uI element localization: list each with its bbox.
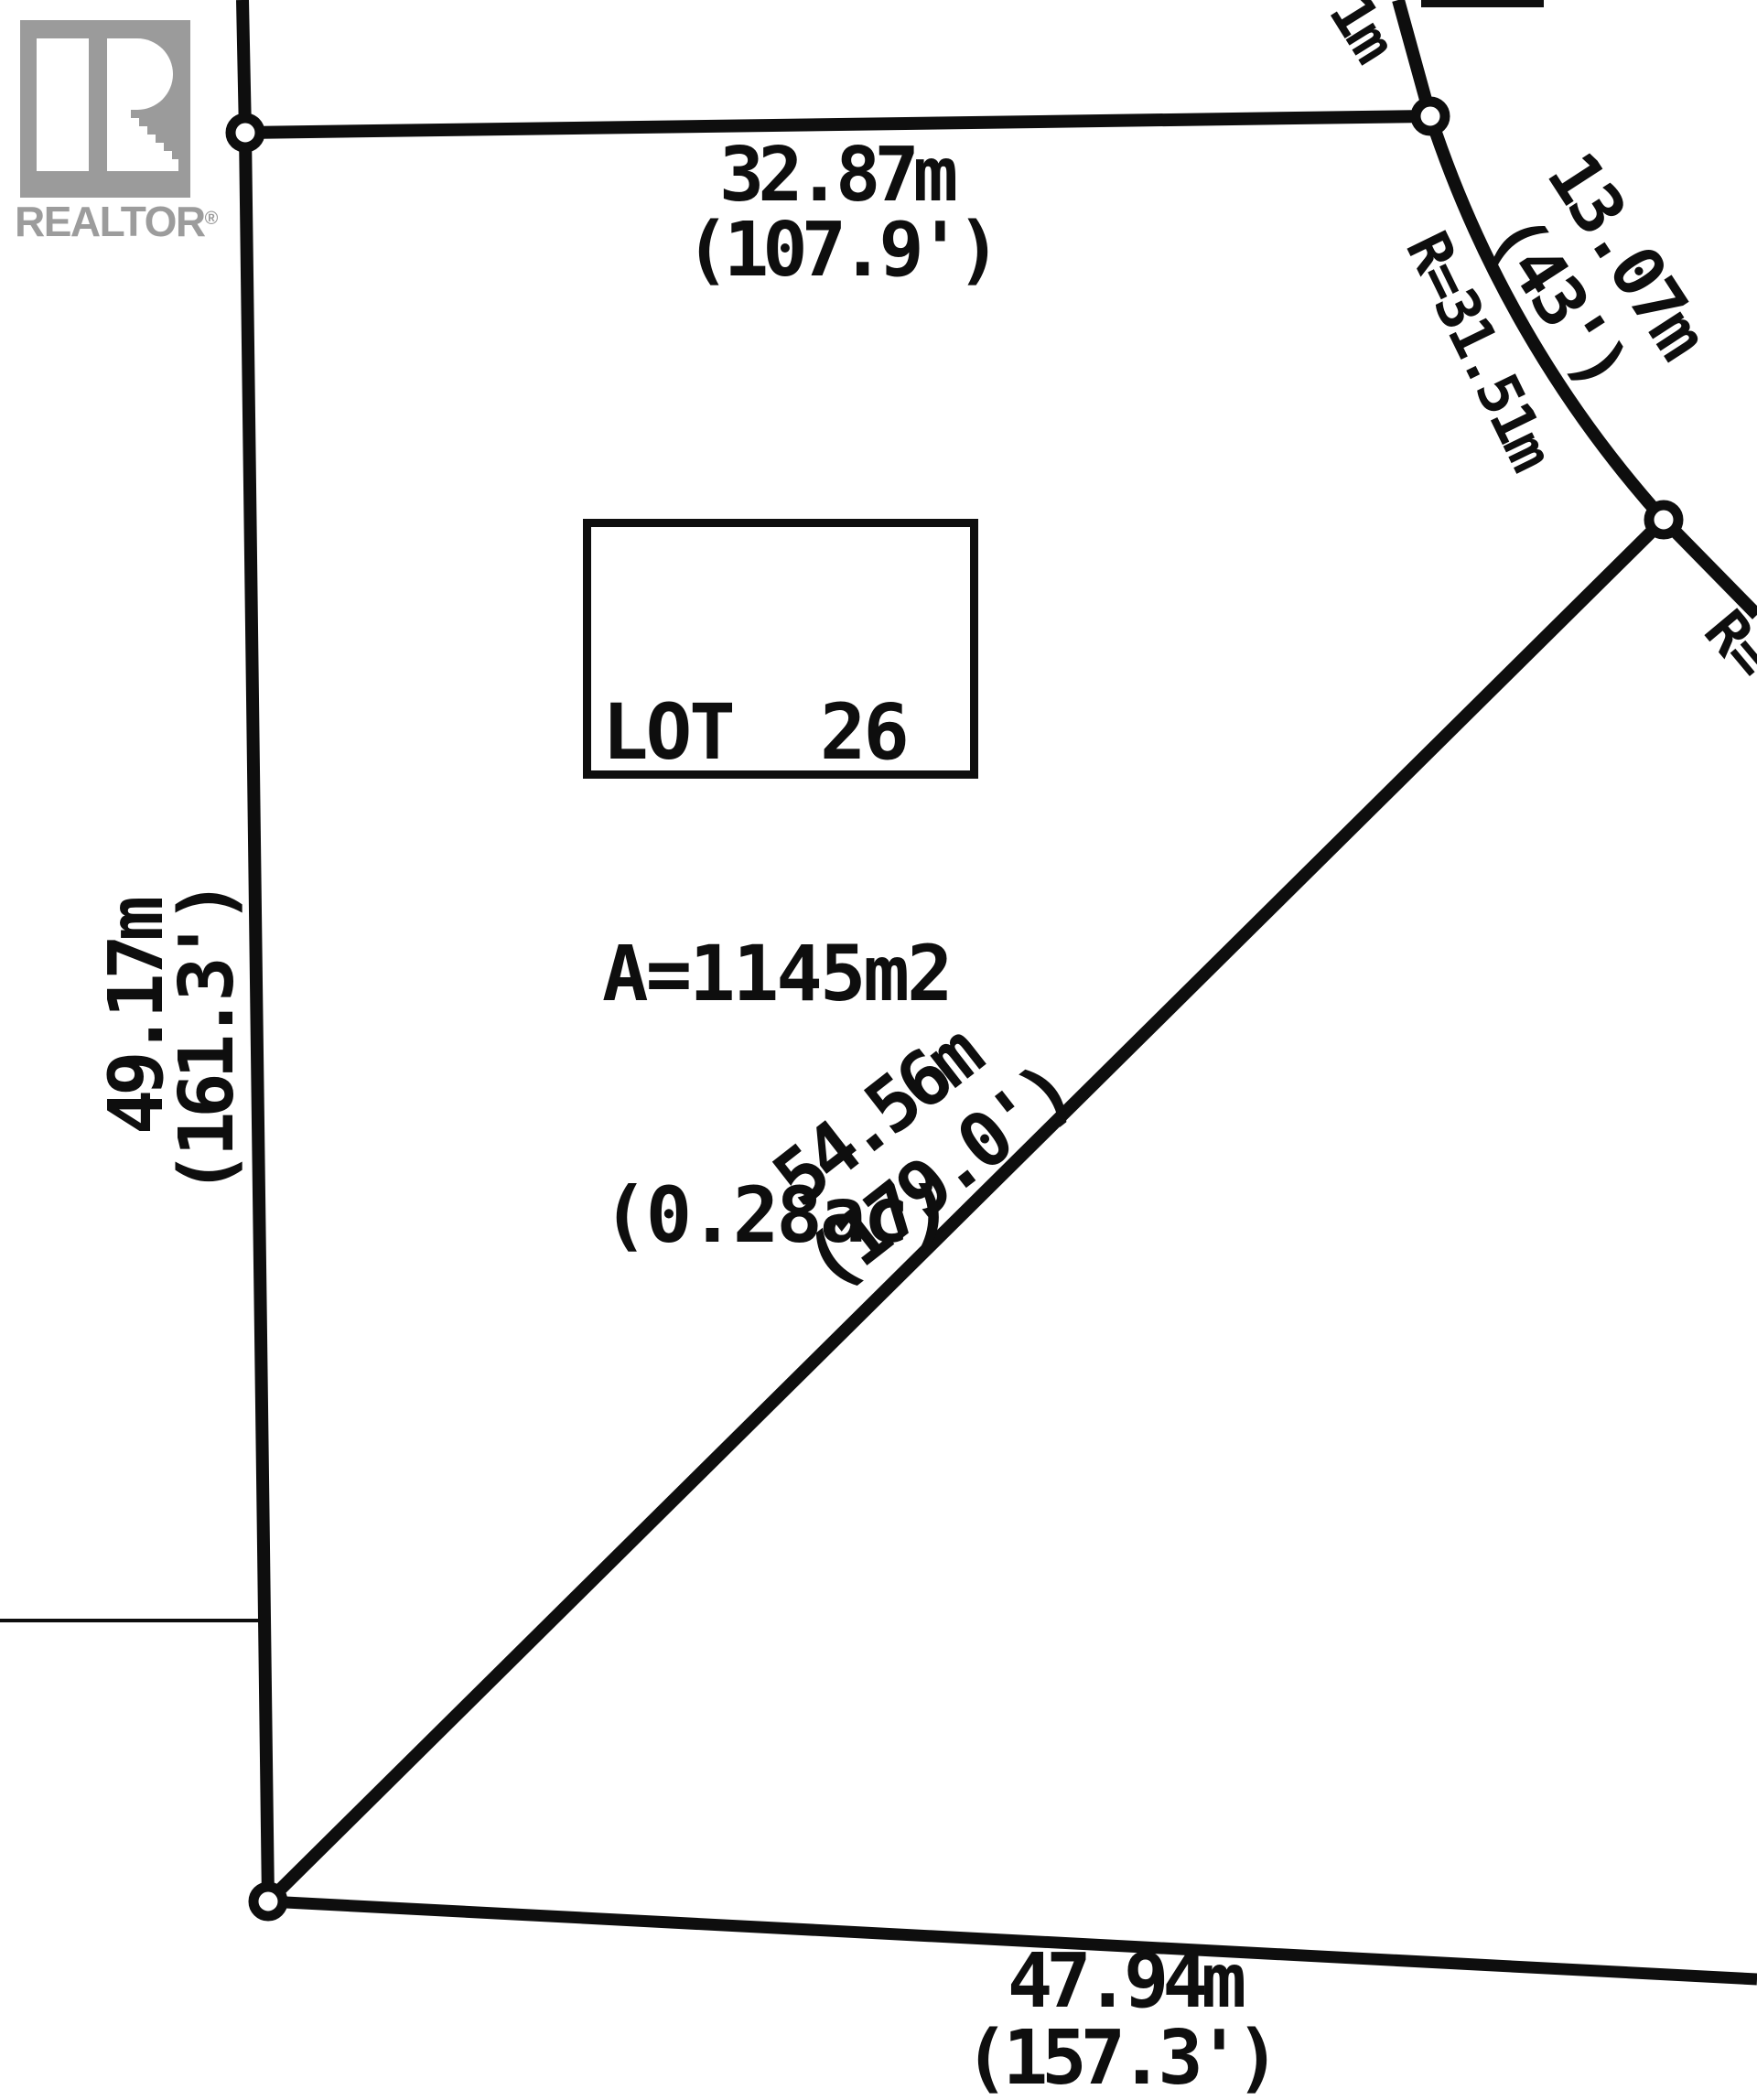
- corner-marker-east: [1649, 505, 1678, 534]
- realtor-wordmark: REALTOR®: [15, 200, 225, 242]
- dimension-left-imperial: (161.3'): [170, 886, 245, 1196]
- realtor-logo-stem: [37, 38, 89, 171]
- registered-trademark-icon: ®: [205, 209, 219, 229]
- dimension-top-imperial: (107.9'): [685, 213, 996, 288]
- lot-area-imperial: (0.28ac): [602, 1175, 970, 1255]
- realtor-logo: [20, 20, 190, 198]
- lot-area-metric: A=1145m2: [602, 933, 970, 1014]
- dimension-bottom-metric: 47.94m: [1008, 1944, 1240, 2019]
- lot-survey-plan: 32.87m (107.9') 49.17m (161.3') 54.56m (…: [0, 0, 1757, 2100]
- corner-marker-north: [1416, 102, 1445, 131]
- clipped-annotation-mark: [1421, 0, 1544, 7]
- lot-info-box: LOT 26 A=1145m2 (0.28ac): [583, 519, 978, 779]
- dimension-top-metric: 32.87m: [719, 138, 952, 213]
- corner-marker-southwest: [253, 1887, 283, 1916]
- corner-marker-northwest: [231, 118, 260, 147]
- lot-number: LOT 26: [602, 692, 970, 772]
- north-boundary-line: [245, 116, 1430, 133]
- dimension-bottom-imperial: (157.3'): [965, 2021, 1275, 2096]
- realtor-wordmark-text: REALTOR: [15, 198, 205, 245]
